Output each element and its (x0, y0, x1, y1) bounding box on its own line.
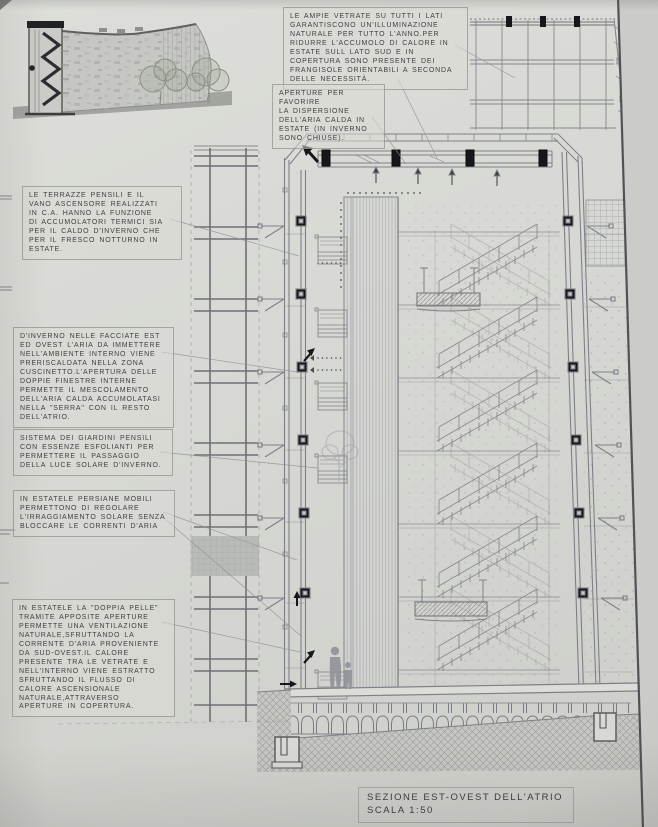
annotation-note-vetrate: LE AMPIE VETRATE SU TUTTI I LATI GARANTI… (283, 7, 468, 90)
airflow-arrow-roof (308, 151, 318, 162)
aperture-marker (298, 435, 308, 445)
annotation-note-inverno: D'INVERNO NELLE FACCIATE EST ED OVEST L'… (13, 327, 174, 428)
hanging-terrace (315, 454, 347, 483)
hanging-terrace (315, 235, 347, 264)
footing (594, 713, 616, 741)
aperture-marker (299, 508, 309, 518)
hanger-mark (494, 170, 500, 186)
aperture-marker (563, 216, 573, 226)
aperture-marker (300, 588, 310, 598)
roof-beam-frangisole (318, 150, 552, 186)
hanging-terrace (315, 308, 347, 337)
aperture-marker (568, 362, 578, 372)
left-double-skin-wall (258, 158, 310, 690)
annotation-note-aperture: APERTURE PER FAVORIRE LA DISPERSIONE DEL… (272, 84, 385, 149)
drawing-scale: SCALA 1:50 (367, 805, 565, 818)
hanger-mark (415, 168, 421, 184)
hanger-mark (373, 167, 379, 183)
annotation-note-terrazze: LE TERRAZZE PENSILI E IL VANO ASCENSORE … (22, 186, 182, 260)
aperture-marker (565, 289, 575, 299)
annotation-note-giardini: SISTEMA DEI GIARDINI PENSILI CON ESSENZE… (13, 429, 173, 476)
annotation-note-doppia-pelle: IN ESTATELE LA "DOPPIA PELLE" TRAMITE AP… (12, 599, 175, 717)
aperture-marker (296, 216, 306, 226)
foundation (257, 683, 641, 772)
sketch-tower-roof (27, 21, 64, 28)
curtain-wall-detail (470, 16, 626, 132)
drawing-title: SEZIONE EST-OVEST DELL'ATRIO (367, 792, 565, 805)
aperture-marker (297, 362, 307, 372)
aperture-marker (574, 508, 584, 518)
concept-sketch (13, 21, 232, 119)
atrium-section (257, 134, 641, 772)
photographed-drawing-sheet: LE AMPIE VETRATE SU TUTTI I LATI GARANTI… (0, 0, 658, 827)
hanger-mark (449, 169, 455, 185)
title-block: SEZIONE EST-OVEST DELL'ATRIO SCALA 1:50 (358, 787, 574, 823)
hanging-terrace (315, 381, 347, 410)
annotation-note-persiane: IN ESTATELE PERSIANE MOBILI PERMETTONO D… (13, 490, 175, 537)
aperture-marker (571, 435, 581, 445)
aperture-marker (296, 289, 306, 299)
elevator-shaft-wall (344, 197, 398, 688)
